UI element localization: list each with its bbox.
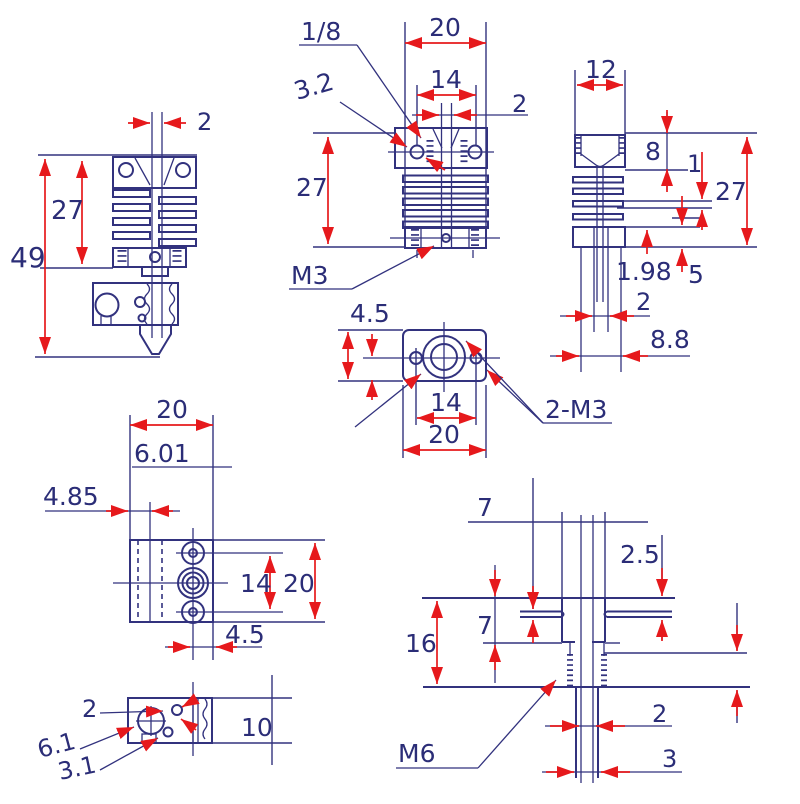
dim-v2-bore: 2 [512,90,527,118]
view-front-assembly: 2 49 27 [10,108,212,357]
hotend-dimension-drawing: 2 49 27 [0,0,800,800]
dim-v5-a: 6.01 [134,439,190,468]
dim-v7-top: 7 [477,493,493,522]
dim-v3-groove: 8.8 [650,325,690,354]
dim-v3-cap: 8 [645,137,661,166]
dim-v3-fin: 1 [687,150,702,178]
dim-v5-width: 20 [156,395,188,424]
dim-v2-spacing: 14 [430,65,462,94]
technical-drawing: 2 49 27 [0,0,800,800]
view-side: 12 8 1 27 5 1.98 2 8.8 [550,55,757,372]
view-block: 20 6.01 4.85 14 20 4.5 [43,395,325,660]
view-small-block: 10 2 6.1 3.1 [34,675,292,786]
dim-v5-height: 20 [283,569,315,598]
dim-v7-id: 2 [652,700,667,728]
view-heatbreak: 7 16 7 2.5 2 3 M6 [396,478,750,783]
dim-v1-fins: 27 [51,196,84,226]
dim-v2-width: 20 [429,13,461,42]
dim-v7-thread: M6 [398,739,435,768]
view-heatsink-front: 20 14 2 1/8 3.2 27 M3 [289,13,528,290]
dim-v2-height: 27 [296,173,328,202]
dim-v6-a: 2 [82,695,97,723]
dim-v1-bore: 2 [197,108,212,136]
dim-v4-spacing: 14 [430,388,462,417]
dim-v7-length: 16 [405,629,437,658]
dim-v2-hole: 3.2 [291,67,337,106]
dim-v3-tube: 2 [636,288,651,316]
dim-v7-lip: 2.5 [620,540,660,569]
dim-v7-od: 3 [662,745,677,773]
dim-v4-edge: 4.5 [350,299,390,328]
dim-v5-b: 4.85 [43,482,99,511]
dim-v3-clamp: 5 [688,260,704,289]
dim-v4-width: 20 [428,420,460,449]
dim-v6-height: 10 [241,713,273,742]
dim-v5-c: 4.5 [225,620,265,649]
view-top: 4.5 14 20 2-M3 [338,299,612,458]
dim-v5-spacing: 14 [240,569,272,598]
dim-v7-boss: 7 [477,611,493,640]
dim-v3-width: 12 [585,55,617,84]
dim-v2-thread: 1/8 [301,17,341,46]
dim-v1-total: 49 [10,241,46,274]
dim-v2-screw: M3 [291,261,328,290]
dim-v4-screws: 2-M3 [545,395,607,424]
dim-v3-bore: 1.98 [616,257,672,286]
dim-v3-height: 27 [715,177,747,206]
